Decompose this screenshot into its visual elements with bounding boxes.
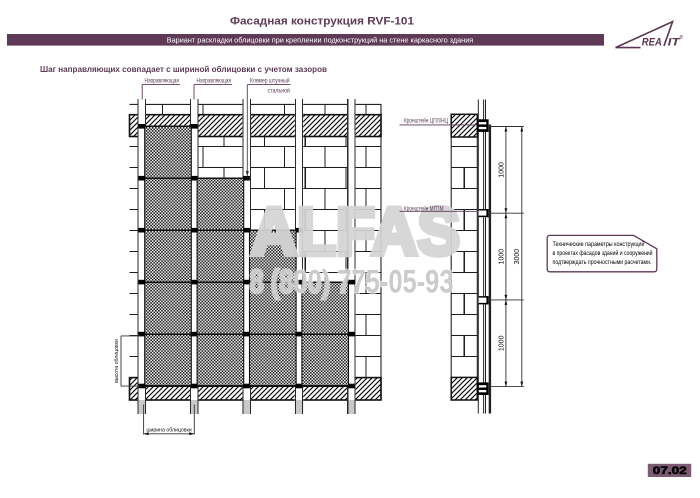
svg-text:Кронштейн ЦПЛ/НЦ: Кронштейн ЦПЛ/НЦ	[404, 118, 448, 125]
svg-text:высота облицовки: высота облицовки	[114, 339, 120, 383]
svg-text:Технические параметры конструк: Технические параметры конструкций	[553, 241, 645, 248]
svg-text:Направляющая: Направляющая	[197, 79, 232, 85]
svg-text:8 (800) 775-05-93: 8 (800) 775-05-93	[250, 264, 454, 300]
svg-text:стальной: стальной	[268, 87, 291, 94]
svg-text:Фасадная конструкция RVF-101: Фасадная конструкция RVF-101	[230, 16, 414, 28]
svg-text:1000: 1000	[498, 249, 505, 265]
svg-text:1000: 1000	[498, 335, 505, 351]
svg-text:Направляющая: Направляющая	[145, 79, 180, 85]
svg-text:REA: REA	[642, 37, 662, 49]
svg-text:1000: 1000	[498, 162, 505, 178]
svg-text:Клямер штучный: Клямер штучный	[250, 78, 290, 85]
svg-text:3000: 3000	[514, 249, 521, 265]
svg-text:Шаг направляющих совпадает с ш: Шаг направляющих совпадает с шириной обл…	[40, 65, 327, 74]
svg-text:в проектах фасадов зданий и со: в проектах фасадов зданий и сооружений	[553, 250, 653, 257]
svg-text:Вариант раскладки облицовки пр: Вариант раскладки облицовки при креплени…	[167, 36, 474, 45]
svg-text:ширина облицовки: ширина облицовки	[146, 427, 191, 433]
svg-text:07.02: 07.02	[653, 465, 687, 477]
svg-text:подтверждать прочностными расч: подтверждать прочностными расчетами.	[553, 259, 652, 266]
